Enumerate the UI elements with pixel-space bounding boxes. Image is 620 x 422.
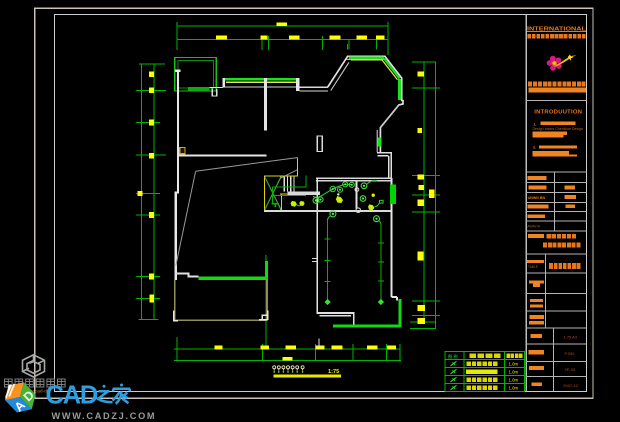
svg-text:TABLE: TABLE — [528, 265, 538, 269]
svg-text:CAD: CAD — [46, 382, 98, 410]
svg-text:1.0m: 1.0m — [509, 386, 519, 391]
svg-text:1:75 A3: 1:75 A3 — [564, 335, 578, 340]
svg-text:INTRODUUTION: INTRODUUTION — [534, 110, 582, 116]
svg-text:UNWN BN: UNWN BN — [528, 196, 546, 200]
svg-text:1.0m: 1.0m — [509, 370, 519, 375]
svg-text:Design Inkers Checkline Design: Design Inkers Checkline Design — [533, 127, 584, 131]
svg-text:1.: 1. — [533, 121, 536, 126]
svg-text:2.: 2. — [533, 145, 536, 150]
svg-text:1.0m: 1.0m — [509, 362, 519, 367]
svg-text:图 例: 图 例 — [448, 353, 458, 360]
svg-text:1:75: 1:75 — [328, 369, 339, 375]
svg-text:2P-03: 2P-03 — [565, 367, 576, 372]
svg-text:AWAY/A: AWAY/A — [527, 225, 540, 229]
svg-text:WWW.CADZJ.COM: WWW.CADZJ.COM — [52, 411, 157, 421]
svg-text:2007-12: 2007-12 — [563, 383, 578, 388]
svg-text:1.0m: 1.0m — [509, 378, 519, 383]
svg-text:P.030: P.030 — [565, 351, 576, 356]
